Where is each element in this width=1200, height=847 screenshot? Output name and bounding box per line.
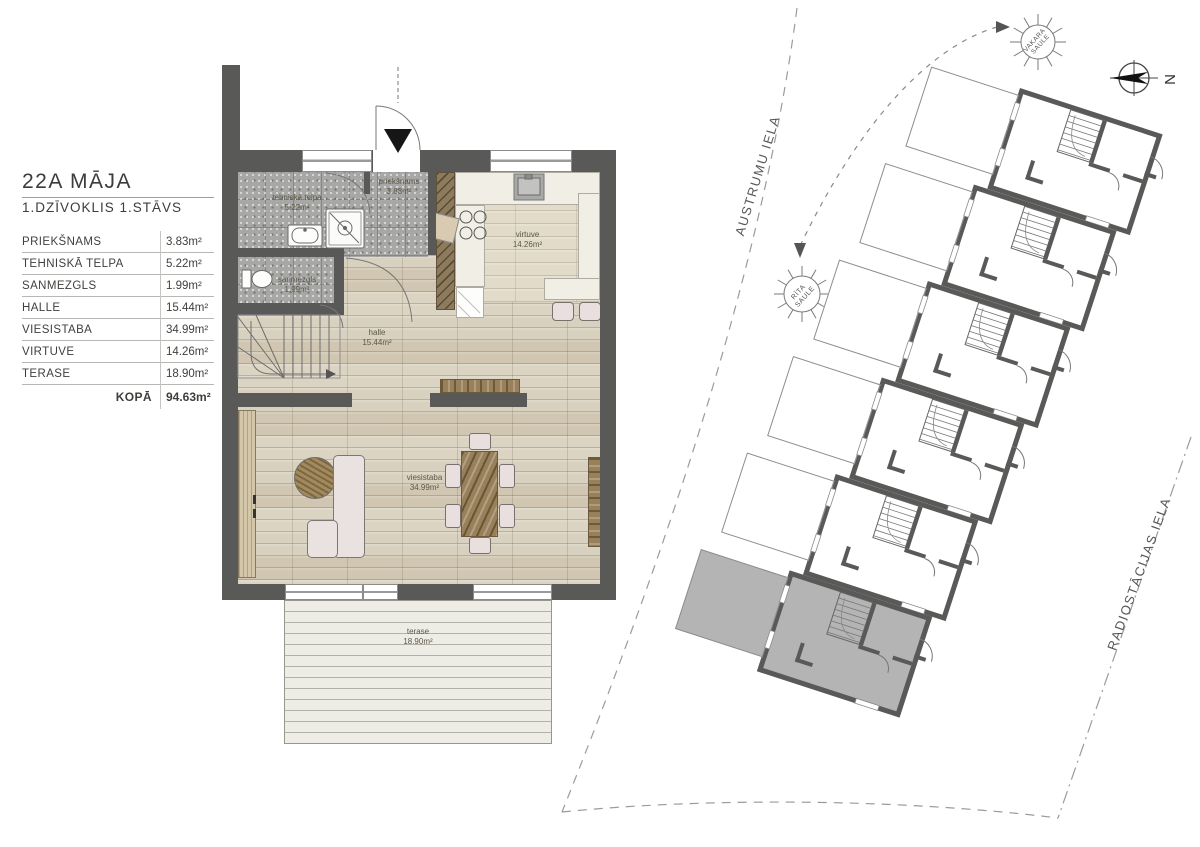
sun-path-arrow-east (794, 243, 806, 258)
north-letter: N (1161, 74, 1178, 85)
room-label-tehniska-telpa: tehniskā telpa 5.22m² (252, 193, 342, 214)
evening-sun: VAKARA SAULE (1008, 12, 1068, 77)
plan-linework (222, 65, 616, 600)
staircase (238, 315, 340, 378)
room-label-prieksnams: priekšnams 3.83m² (368, 177, 430, 198)
north-compass: N (1108, 52, 1190, 109)
boundary-line-bottom (562, 802, 1058, 818)
toilet (242, 270, 251, 288)
entrance-arrow (384, 129, 412, 153)
room-label-viesistaba: viesistaba 34.99m² (382, 473, 467, 494)
room-label-sanmezgls: sanmezgls 1.99m² (262, 275, 332, 296)
room-label-halle: halle 15.44m² (342, 328, 412, 349)
floor-plan-sheet: 22A MĀJA 1.DZĪVOKLIS 1.STĀVS PRIEKŠNAMS … (0, 0, 1200, 847)
hob (460, 211, 486, 239)
main-floor-plan: priekšnams 3.83m² tehniskā telpa 5.22m² … (222, 65, 616, 600)
room-label-virtuve: virtuve 14.26m² (490, 230, 565, 251)
